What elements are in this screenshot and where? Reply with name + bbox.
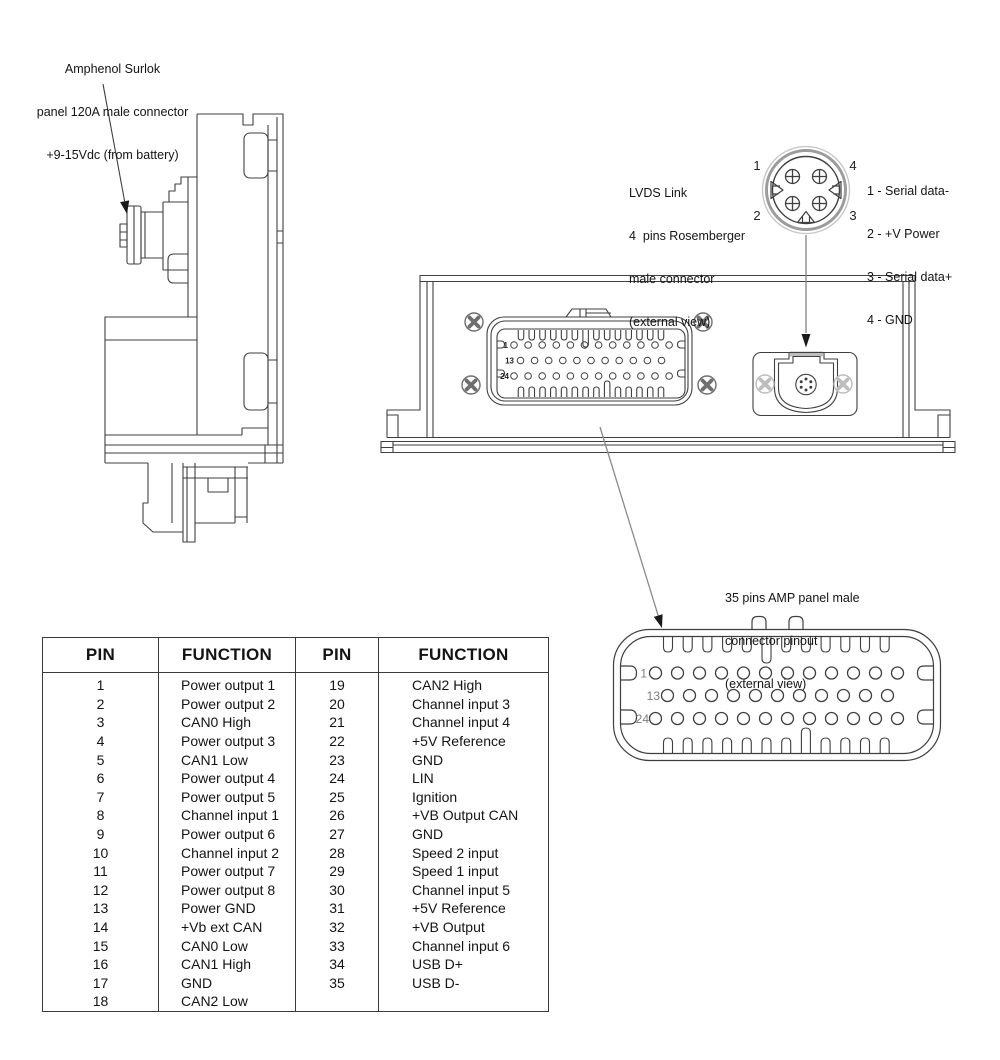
front-row2-label: 13 [505,357,514,366]
pin-number-cell: 4 [43,732,159,751]
amp-connector-side [143,463,248,542]
function-cell: USB D+ [379,955,549,974]
lvds-pin1-label: 1 [753,158,760,173]
table-row: 12Power output 830Channel input 5 [43,881,549,900]
function-cell: Channel input 6 [379,936,549,955]
lvds-arrowhead-icon [802,334,811,348]
function-cell: Power output 1 [159,673,296,695]
lvds-pinout-line1: 1 - Serial data- [867,184,952,198]
function-cell: Power output 3 [159,732,296,751]
surlok-label-line3: +9-15Vdc (from battery) [15,148,210,162]
lvds-label-line1: LVDS Link [629,186,745,200]
lvds-pinout-line3: 3 - Serial data+ [867,270,952,284]
lvds-pin2-label: 2 [753,208,760,223]
pin-number-cell: 12 [43,881,159,900]
function-cell: +5V Reference [379,899,549,918]
amp-row1-label: 1 [640,667,647,681]
table-row: 2Power output 220Channel input 3 [43,695,549,714]
table-row: 7Power output 525Ignition [43,788,549,807]
function-cell: CAN2 High [379,673,549,695]
pin-function-table: PIN FUNCTION PIN FUNCTION 1Power output … [42,637,549,1012]
pin-number-cell: 25 [296,788,379,807]
table-row: 6Power output 424LIN [43,769,549,788]
function-cell: Ignition [379,788,549,807]
amp-row2-label: 13 [647,689,661,703]
lvds-label: LVDS Link 4 pins Rosemberger male connec… [629,157,745,359]
front-row1-label: 1 [504,341,509,350]
pin-number-cell: 18 [43,992,159,1011]
function-cell: Power output 6 [159,825,296,844]
lvds-key-notches [771,182,841,223]
table-row: 5CAN1 Low23GND [43,750,549,769]
surlok-label-line1: Amphenol Surlok [15,62,210,76]
amp-label: 35 pins AMP panel male connector pinout … [725,562,860,720]
surlok-label: Amphenol Surlok panel 120A male connecto… [15,33,210,191]
pin-number-cell: 11 [43,862,159,881]
surlok-connector-side [120,206,163,264]
surlok-label-line2: panel 120A male connector [15,105,210,119]
function-cell: GND [379,825,549,844]
function-cell: USB D- [379,974,549,993]
pin-number-cell: 19 [296,673,379,695]
pin-header-2: PIN [296,638,379,673]
side-bracket-bottom [244,353,268,410]
function-cell: GND [379,750,549,769]
page: 1 13 24 1 4 2 3 [0,0,1000,1060]
front-row3-label: 24 [500,372,509,381]
surlok-arrowhead-icon [120,200,129,214]
pin-number-cell: 10 [43,843,159,862]
table-row: 8Channel input 126+VB Output CAN [43,806,549,825]
pin-number-cell: 5 [43,750,159,769]
table-row: 16CAN1 High34USB D+ [43,955,549,974]
pin-number-cell: 9 [43,825,159,844]
function-cell: CAN0 Low [159,936,296,955]
pin-number-cell: 34 [296,955,379,974]
function-cell: Speed 1 input [379,862,549,881]
function-cell [379,992,549,1011]
table-row: 10Channel input 228Speed 2 input [43,843,549,862]
function-cell: Power GND [159,899,296,918]
lvds-label-line4: (external view) [629,315,745,329]
function-cell: Speed 2 input [379,843,549,862]
pin-number-cell: 27 [296,825,379,844]
amp-label-line3: (external view) [725,677,860,691]
pin-number-cell: 1 [43,673,159,695]
pin-number-cell: 6 [43,769,159,788]
function-cell: +Vb ext CAN [159,918,296,937]
pin-number-cell: 17 [43,974,159,993]
amp-row3-label: 24 [636,712,650,726]
pin-number-cell: 21 [296,713,379,732]
pin-number-cell: 28 [296,843,379,862]
table-row: 14+Vb ext CAN32+VB Output [43,918,549,937]
table-row: 13Power GND31+5V Reference [43,899,549,918]
function-cell: CAN0 High [159,713,296,732]
pin-number-cell: 16 [43,955,159,974]
lvds-pinout-line2: 2 - +V Power [867,227,952,241]
lvds-pinout-list: 1 - Serial data- 2 - +V Power 3 - Serial… [867,155,952,357]
function-cell: Power output 7 [159,862,296,881]
table-row: 18CAN2 Low [43,992,549,1011]
lvds-pin-sockets [786,170,827,211]
pin-number-cell: 13 [43,899,159,918]
pin-number-cell: 8 [43,806,159,825]
pin-number-cell: 35 [296,974,379,993]
table-row: 15CAN0 Low33Channel input 6 [43,936,549,955]
pin-number-cell: 15 [43,936,159,955]
function-header-1: FUNCTION [159,638,296,673]
amp-label-line2: connector pinout [725,634,860,648]
table-row: 3CAN0 High21Channel input 4 [43,713,549,732]
pin-number-cell: 7 [43,788,159,807]
pin-number-cell: 22 [296,732,379,751]
pin-number-cell: 3 [43,713,159,732]
lvds-pin4-label: 4 [849,158,856,173]
amp-arrowhead-icon [654,614,663,628]
pin-table-body: 1Power output 119CAN2 High2Power output … [43,673,549,1012]
function-cell: +VB Output [379,918,549,937]
table-row: 11Power output 729Speed 1 input [43,862,549,881]
table-row: 17GND35USB D- [43,974,549,993]
pin-number-cell: 20 [296,695,379,714]
pin-number-cell: 24 [296,769,379,788]
pin-header-1: PIN [43,638,159,673]
function-header-2: FUNCTION [379,638,549,673]
function-cell: Power output 5 [159,788,296,807]
function-cell: Channel input 5 [379,881,549,900]
pin-number-cell: 29 [296,862,379,881]
function-cell: +VB Output CAN [379,806,549,825]
lvds-label-line2: 4 pins Rosemberger [629,229,745,243]
function-cell: CAN1 Low [159,750,296,769]
pin-number-cell: 31 [296,899,379,918]
function-cell: LIN [379,769,549,788]
front-connector-bottom-slots [518,381,664,397]
pin-number-cell: 33 [296,936,379,955]
lvds-pinout-line4: 4 - GND [867,313,952,327]
function-cell: Channel input 3 [379,695,549,714]
function-cell: Power output 4 [159,769,296,788]
lvds-label-line3: male connector [629,272,745,286]
pin-number-cell [296,992,379,1011]
function-cell: CAN1 High [159,955,296,974]
pin-number-cell: 26 [296,806,379,825]
function-cell: Channel input 2 [159,843,296,862]
table-row: 4Power output 322+5V Reference [43,732,549,751]
table-header-row: PIN FUNCTION PIN FUNCTION [43,638,549,673]
lvds-connector-detail [763,147,850,234]
pin-number-cell: 23 [296,750,379,769]
function-cell: Power output 8 [159,881,296,900]
front-lvds-pins [800,378,813,392]
pin-number-cell: 14 [43,918,159,937]
function-cell: Power output 2 [159,695,296,714]
lvds-pin3-label: 3 [849,208,856,223]
function-cell: Channel input 4 [379,713,549,732]
pin-number-cell: 2 [43,695,159,714]
amp-label-line1: 35 pins AMP panel male [725,591,860,605]
pin-number-cell: 32 [296,918,379,937]
function-cell: +5V Reference [379,732,549,751]
function-cell: CAN2 Low [159,992,296,1011]
function-cell: Channel input 1 [159,806,296,825]
amp-leader-line [600,427,658,616]
pin-number-cell: 30 [296,881,379,900]
function-cell: GND [159,974,296,993]
table-row: 9Power output 627GND [43,825,549,844]
mounting-plate [381,442,955,453]
side-bracket-top [244,133,268,178]
amp-bottom-slots [664,728,890,753]
table-row: 1Power output 119CAN2 High [43,673,549,695]
